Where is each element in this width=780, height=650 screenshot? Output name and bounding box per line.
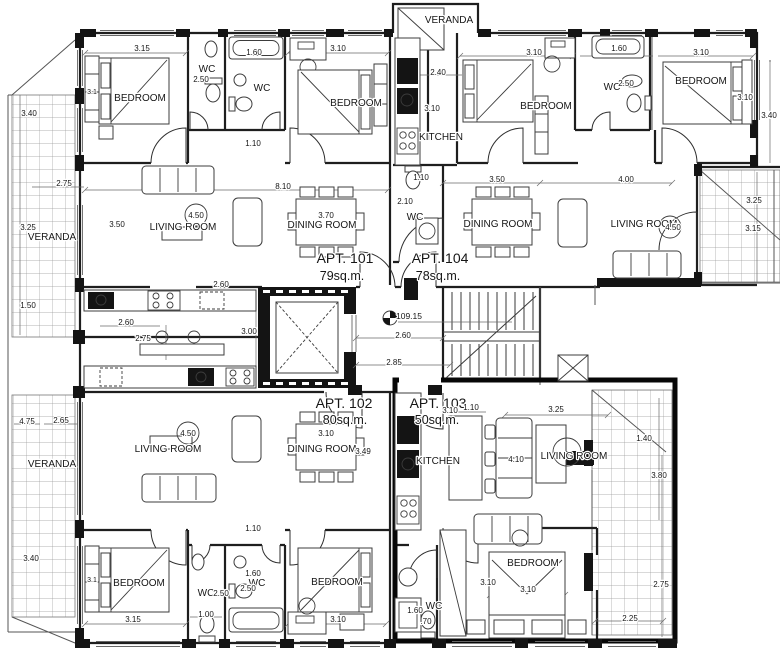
dim-label: .70	[420, 617, 432, 626]
dim-label: 3.1	[87, 577, 97, 584]
sink	[399, 568, 417, 586]
dim-label: 3.10	[330, 615, 346, 624]
veranda-left-bottom	[12, 395, 75, 617]
dim-label: 3.25	[548, 405, 564, 414]
dim-label: 4.75	[19, 417, 35, 426]
dim-label: 1.60	[407, 606, 423, 615]
dim-label: 2.50	[618, 79, 634, 88]
room-label-apt103-bedroom: BEDROOM	[507, 558, 559, 569]
apt102-area: 80sq.m.	[323, 413, 367, 427]
sink	[234, 556, 246, 568]
dim-label: 3.40	[23, 554, 39, 563]
dim-label: 2.85	[386, 358, 402, 367]
apt104-area: 78sq.m.	[416, 269, 460, 283]
floor-plan-drawing: BEDROOM WC WC BEDROOM LIVING ROOM DINING…	[0, 0, 780, 650]
dim-label: 3.70	[318, 211, 334, 220]
room-label-apt101-bedroom1: BEDROOM	[114, 93, 166, 104]
room-label-apt104-kitchen: KITCHEN	[419, 132, 463, 143]
dim-label: 2.75	[56, 179, 72, 188]
sink	[234, 74, 246, 86]
dim-label: 2.60	[213, 280, 229, 289]
dim-label: 1.10	[463, 403, 479, 412]
dim-label: 8.10	[275, 182, 291, 191]
dim-label: 4.50	[665, 223, 681, 232]
dim-label: 3.80	[651, 471, 667, 480]
veranda-right-top	[700, 170, 780, 282]
dim-label: 1.00	[198, 610, 214, 619]
dim-label: 2.50	[240, 584, 256, 593]
dim-label: 1.60	[611, 44, 627, 53]
dim-label: 3.10	[330, 44, 346, 53]
apt103-area: 50sq.m.	[415, 413, 459, 427]
dim-label: 4.00	[618, 175, 634, 184]
dim-label: 2.50	[193, 75, 209, 84]
dim-label: 3.49	[355, 447, 371, 456]
dim-label: 2.60	[118, 318, 134, 327]
toilet	[627, 94, 641, 112]
dim-label: 3.10	[424, 104, 440, 113]
room-label-apt103-living: LIVING ROOM	[541, 451, 608, 462]
dim-label: 1.10	[245, 139, 261, 148]
room-label-apt103-wc: WC	[426, 601, 443, 612]
room-label-apt101-dining: DINING ROOM	[288, 220, 357, 231]
dim-label: 1.10	[413, 173, 429, 182]
apt102-name: APT. 102	[316, 395, 373, 411]
dim-label: 1.60	[246, 48, 262, 57]
dim-label: 3.40	[21, 109, 37, 118]
dim-label: 1.50	[20, 301, 36, 310]
apartment-labels: APT. 101 79sq.m. APT. 104 78sq.m. APT. 1…	[316, 250, 469, 427]
room-label-veranda-top: VERANDA	[425, 15, 474, 26]
sofa	[142, 474, 216, 502]
floor-plan-sheet: BEDROOM WC WC BEDROOM LIVING ROOM DINING…	[0, 0, 780, 650]
room-label-apt101-wc2: WC	[254, 83, 271, 94]
room-label-veranda-left-top: VERANDA	[28, 232, 77, 243]
sink	[192, 554, 204, 570]
armchair	[558, 199, 587, 247]
dim-label: 3.25	[20, 223, 36, 232]
kitchen-counter	[84, 366, 256, 388]
dim-label: 3.10	[442, 406, 458, 415]
dim-label: 3.50	[109, 220, 125, 229]
toilet	[236, 97, 252, 111]
room-label-apt102-living: LIVING ROOM	[135, 444, 202, 455]
room-label-apt101-living: LIVING ROOM	[150, 222, 217, 233]
room-label-apt102-bedroom1: BEDROOM	[113, 578, 165, 589]
dim-label: 4.10	[508, 455, 524, 464]
dim-label: 2.25	[622, 614, 638, 623]
room-label-apt104-bedroom1: BEDROOM	[520, 101, 572, 112]
room-label-apt103-kitchen: KITCHEN	[416, 456, 460, 467]
room-label-apt101-bedroom2: BEDROOM	[330, 98, 382, 109]
veranda-apt103	[592, 390, 672, 635]
room-label-veranda-left-bottom: VERANDA	[28, 459, 77, 470]
dim-label: 3.10	[318, 429, 334, 438]
apt103-furniture	[395, 393, 586, 638]
dim-label: 3.25	[746, 196, 762, 205]
apt104-furniture	[395, 36, 752, 278]
armchair	[232, 416, 261, 462]
breakfast-bar	[140, 344, 224, 355]
apt103-name: APT. 103	[410, 395, 467, 411]
dim-label: 2.40	[430, 68, 446, 77]
dim-label: 3.40	[761, 111, 777, 120]
sofa	[613, 251, 681, 278]
dim-label: 3.00	[241, 327, 257, 336]
dim-label: 2.60	[395, 331, 411, 340]
apt101-name: APT. 101	[317, 250, 374, 266]
dim-label: 1.40	[636, 434, 652, 443]
room-label-apt102-dining: DINING ROOM	[288, 444, 357, 455]
stairs	[443, 292, 540, 378]
apt103-entry-gap	[399, 374, 441, 385]
dim-label: 3.10	[526, 48, 542, 57]
armchair	[233, 198, 262, 246]
dim-label: 3.1	[87, 89, 97, 96]
apt101-area: 79sq.m.	[320, 269, 364, 283]
room-label-apt102-bedroom2: BEDROOM	[311, 577, 363, 588]
dim-label: 3.15	[745, 224, 761, 233]
room-label-apt102-wc1: WC	[198, 588, 215, 599]
dim-label: 4.50	[180, 429, 196, 438]
dim-label: 4.50	[188, 211, 204, 220]
dim-label: 3.10	[520, 585, 536, 594]
apt104-name: APT. 104	[412, 250, 469, 266]
dim-label: 1.60	[245, 569, 261, 578]
toilet	[206, 84, 220, 102]
dim-label: 3.50	[489, 175, 505, 184]
dim-label: 2.75	[653, 580, 669, 589]
dim-label: 3.10	[693, 48, 709, 57]
dim-label: 2.75	[135, 334, 151, 343]
dim-label: 3.15	[125, 615, 141, 624]
level-marker-value: 109.15	[396, 311, 422, 321]
sofa	[474, 514, 542, 544]
dim-label: 2.65	[53, 416, 69, 425]
dim-label: 1.10	[245, 524, 261, 533]
dim-label: 2.50	[213, 589, 229, 598]
room-label-apt101-wc1: WC	[199, 64, 216, 75]
dim-label: 3.15	[134, 44, 150, 53]
dim-label: 2.10	[397, 197, 413, 206]
room-label-apt104-bedroom2: BEDROOM	[675, 76, 727, 87]
room-label-apt104-wc2: WC	[407, 212, 424, 223]
dim-label: 3.10	[480, 578, 496, 587]
dim-label: 3.10	[737, 93, 753, 102]
room-label-apt104-dining: DINING ROOM	[464, 219, 533, 230]
sink	[205, 41, 217, 57]
